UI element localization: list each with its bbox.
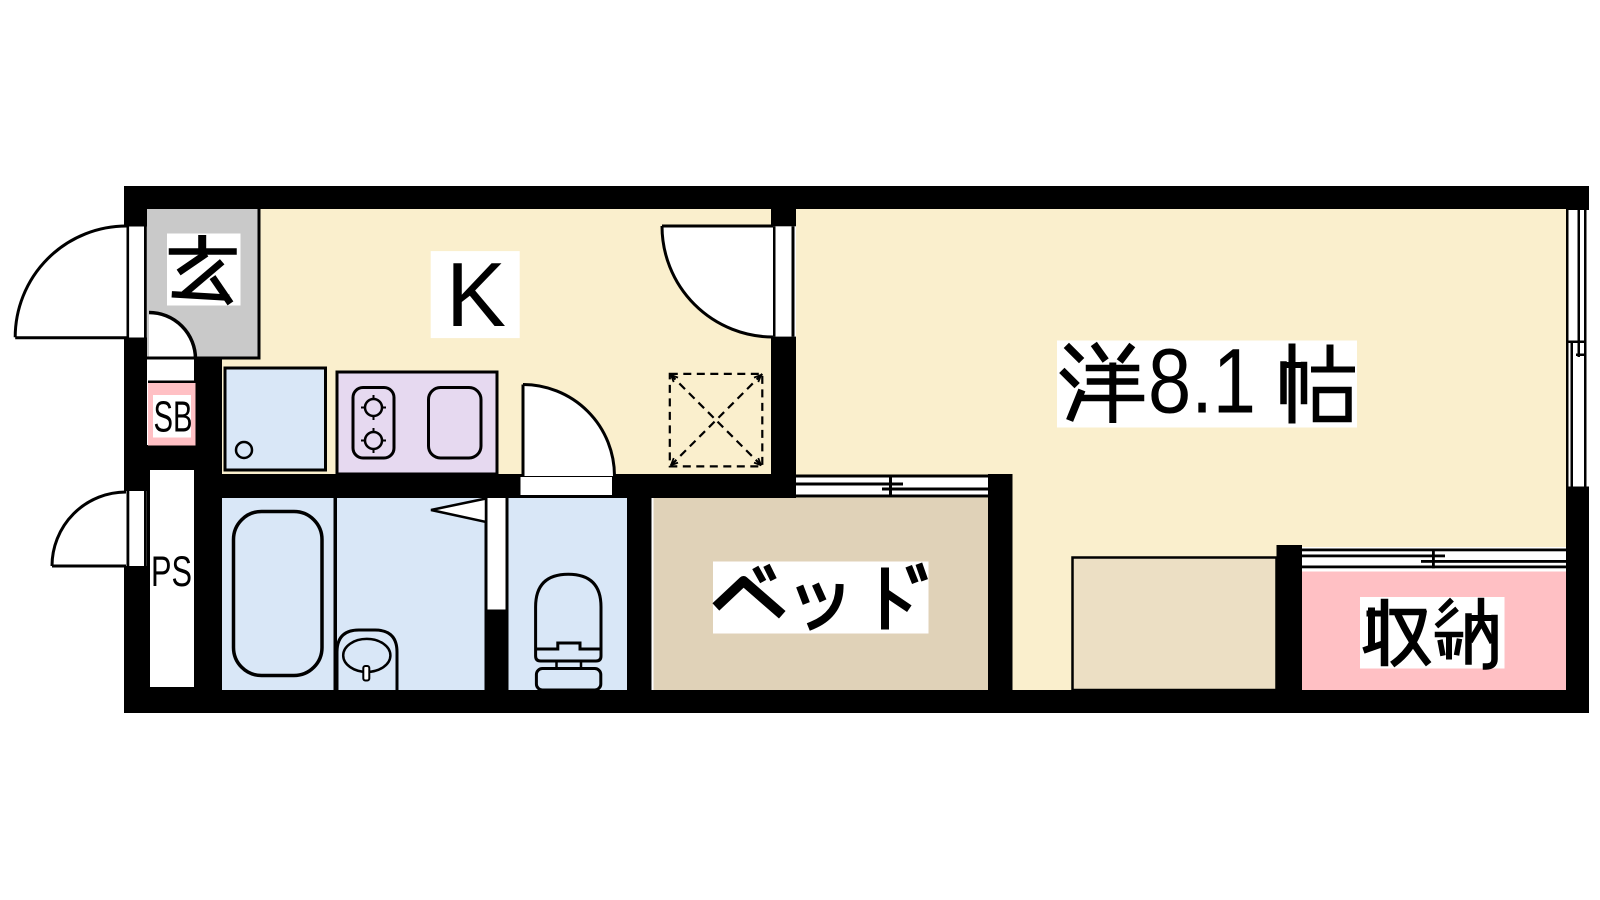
svg-text:SB: SB xyxy=(154,393,193,442)
svg-text:K: K xyxy=(446,245,506,346)
svg-text:8.1: 8.1 xyxy=(1148,331,1256,433)
svg-text:PS: PS xyxy=(151,548,192,596)
